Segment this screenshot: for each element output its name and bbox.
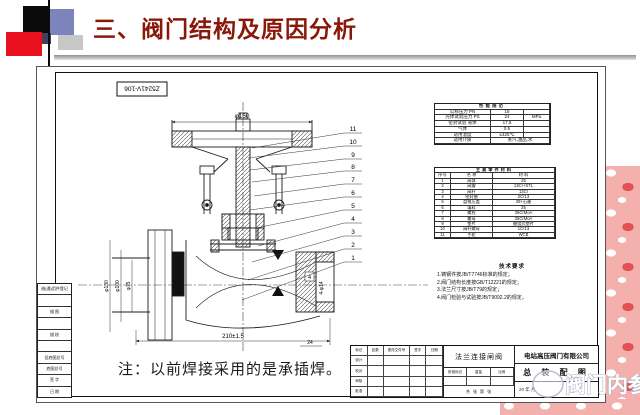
tech-requirements-title: 技术要求 [437,263,587,271]
title-block-revision-grid: 标记 处数 更改文件号 签字 日期 设计 校对 审核 批准 [351,346,444,397]
left-dimensions: φ130 φ100 φ75 [104,240,132,332]
drawing-number-box: Z5241V-106 [117,82,167,96]
part-numbers: 11 10 9 8 7 6 5 4 3 2 1 [349,126,357,262]
part-number-9: 9 [351,152,355,159]
part-number-2: 2 [351,242,355,249]
title-block-middle: 法兰连接闸阀 阶段标记 重量 比例 共 张 第 张 [444,346,515,397]
rev-header: 处数 [368,346,385,356]
sign-row-label: 校对 [351,366,368,376]
rev-header: 标记 [351,346,368,356]
part-number-4: 4 [351,216,355,223]
dim-holes: 4-φ14 [319,281,325,294]
weld-note: 注：以前焊接采用的是承插焊。 [118,358,342,379]
technical-requirements: 技术要求 1.铸钢件按JB/T7746标准的规定；2.阀门结构长度按GB/T12… [437,263,587,302]
dim-depth: 24 [307,340,313,346]
title-block-right: 电站高压阀门有限公司 总 装 配 图 20 年 月 [515,346,598,397]
stage-cell: 重量 [467,368,490,376]
company-name: 电站高压阀门有限公司 [515,346,598,364]
product-name: 法兰连接闸阀 [444,346,514,368]
part-number-11: 11 [350,126,357,133]
stem-and-bonnet [200,147,286,252]
sign-row-label: 批准 [351,387,368,397]
stage-cell: 比例 [491,368,514,376]
tech-requirement-line: 3.法兰尺寸按JB/T79的规定； [437,287,587,295]
tech-requirement-line: 1.铸钢件按JB/T7746标准的规定； [437,272,587,280]
part-number-10: 10 [349,139,357,146]
sign-row-label: 审核 [351,377,368,387]
material-row-name: 手轮 [451,233,493,238]
perf-value: 蒸汽,油品,水 [491,138,550,144]
perf-label: 适用介质 [435,138,491,144]
drawing-number: Z5241V-106 [124,85,160,92]
rev-header: 更改文件号 [384,346,410,356]
dim-length: 210±1.5 [222,334,244,340]
performance-spec-table: 性能规范 公称压力 PN 16 壳体试验压力 PS 24 MPa 密封试验 液体… [434,103,551,145]
centerlines [78,102,428,352]
rev-header: 日期 [426,346,443,356]
drawing-date: 20 年 月 [515,382,598,397]
slide-canvas: { "slide": { "title": "三、阀门结构及原因分析" }, "… [0,0,640,415]
materials-table: 主要零件材料 序号 名 称 材 料 1 阀体 25 2 阀瓣 13Cr+STL … [434,167,556,239]
dim-weld-label: 4 [308,275,311,281]
rev-header: 签字 [410,346,427,356]
sheet-info: 共 张 第 张 [444,386,514,397]
dim-bolt-circle: φ100 [115,280,121,292]
part-number-6: 6 [351,190,355,197]
stage-cell: 阶段标记 [444,368,467,376]
dim-bore: φ75 [126,281,132,290]
dim-wheel-diameter: φ160 [234,113,249,120]
title-block: 标记 处数 更改文件号 签字 日期 设计 校对 审核 批准 法兰连接闸阀 阶段标… [350,345,599,398]
material-row-number: 11 [435,233,451,238]
tech-requirement-line: 4.阀门检验与试验按JB/T9092.2的规定。 [437,295,587,303]
drawing-title: 总 装 配 图 [515,364,598,382]
dim-flange-od: φ130 [104,280,110,292]
part-number-3: 3 [351,229,355,236]
material-row-material: WCB [493,233,555,238]
part-number-8: 8 [351,164,355,171]
part-number-1: 1 [351,255,355,262]
part-number-7: 7 [351,177,355,184]
part-number-5: 5 [351,203,355,210]
sign-row-label: 设计 [351,356,368,366]
